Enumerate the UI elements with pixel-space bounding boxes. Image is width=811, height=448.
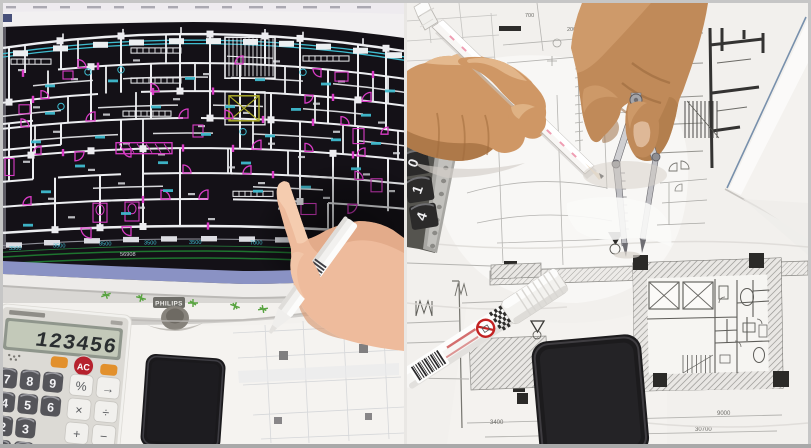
svg-text:3500: 3500 xyxy=(9,246,21,252)
svg-text:PHILIPS: PHILIPS xyxy=(155,301,183,308)
svg-text:3400: 3400 xyxy=(490,420,504,426)
svg-text:÷: ÷ xyxy=(102,405,110,420)
svg-text:3500: 3500 xyxy=(144,240,156,246)
svg-text:%: % xyxy=(75,379,87,394)
svg-text:3500: 3500 xyxy=(53,243,65,249)
svg-text:9000: 9000 xyxy=(717,411,731,417)
svg-text:30700: 30700 xyxy=(695,427,712,433)
svg-text:−: − xyxy=(99,429,108,444)
svg-text:8: 8 xyxy=(26,374,34,389)
svg-text:5: 5 xyxy=(24,398,32,413)
svg-text:+: + xyxy=(72,427,81,442)
svg-text:6: 6 xyxy=(46,400,54,415)
svg-text:7: 7 xyxy=(3,372,11,387)
svg-text:3: 3 xyxy=(21,422,29,437)
svg-text:×: × xyxy=(75,403,84,418)
svg-text:AC: AC xyxy=(77,361,91,372)
svg-text:3500: 3500 xyxy=(99,242,111,248)
svg-text:9: 9 xyxy=(49,376,57,391)
svg-text:700: 700 xyxy=(525,13,534,19)
svg-text:3500: 3500 xyxy=(189,240,201,246)
svg-text:→: → xyxy=(101,381,115,396)
svg-text:56908: 56908 xyxy=(120,252,136,258)
